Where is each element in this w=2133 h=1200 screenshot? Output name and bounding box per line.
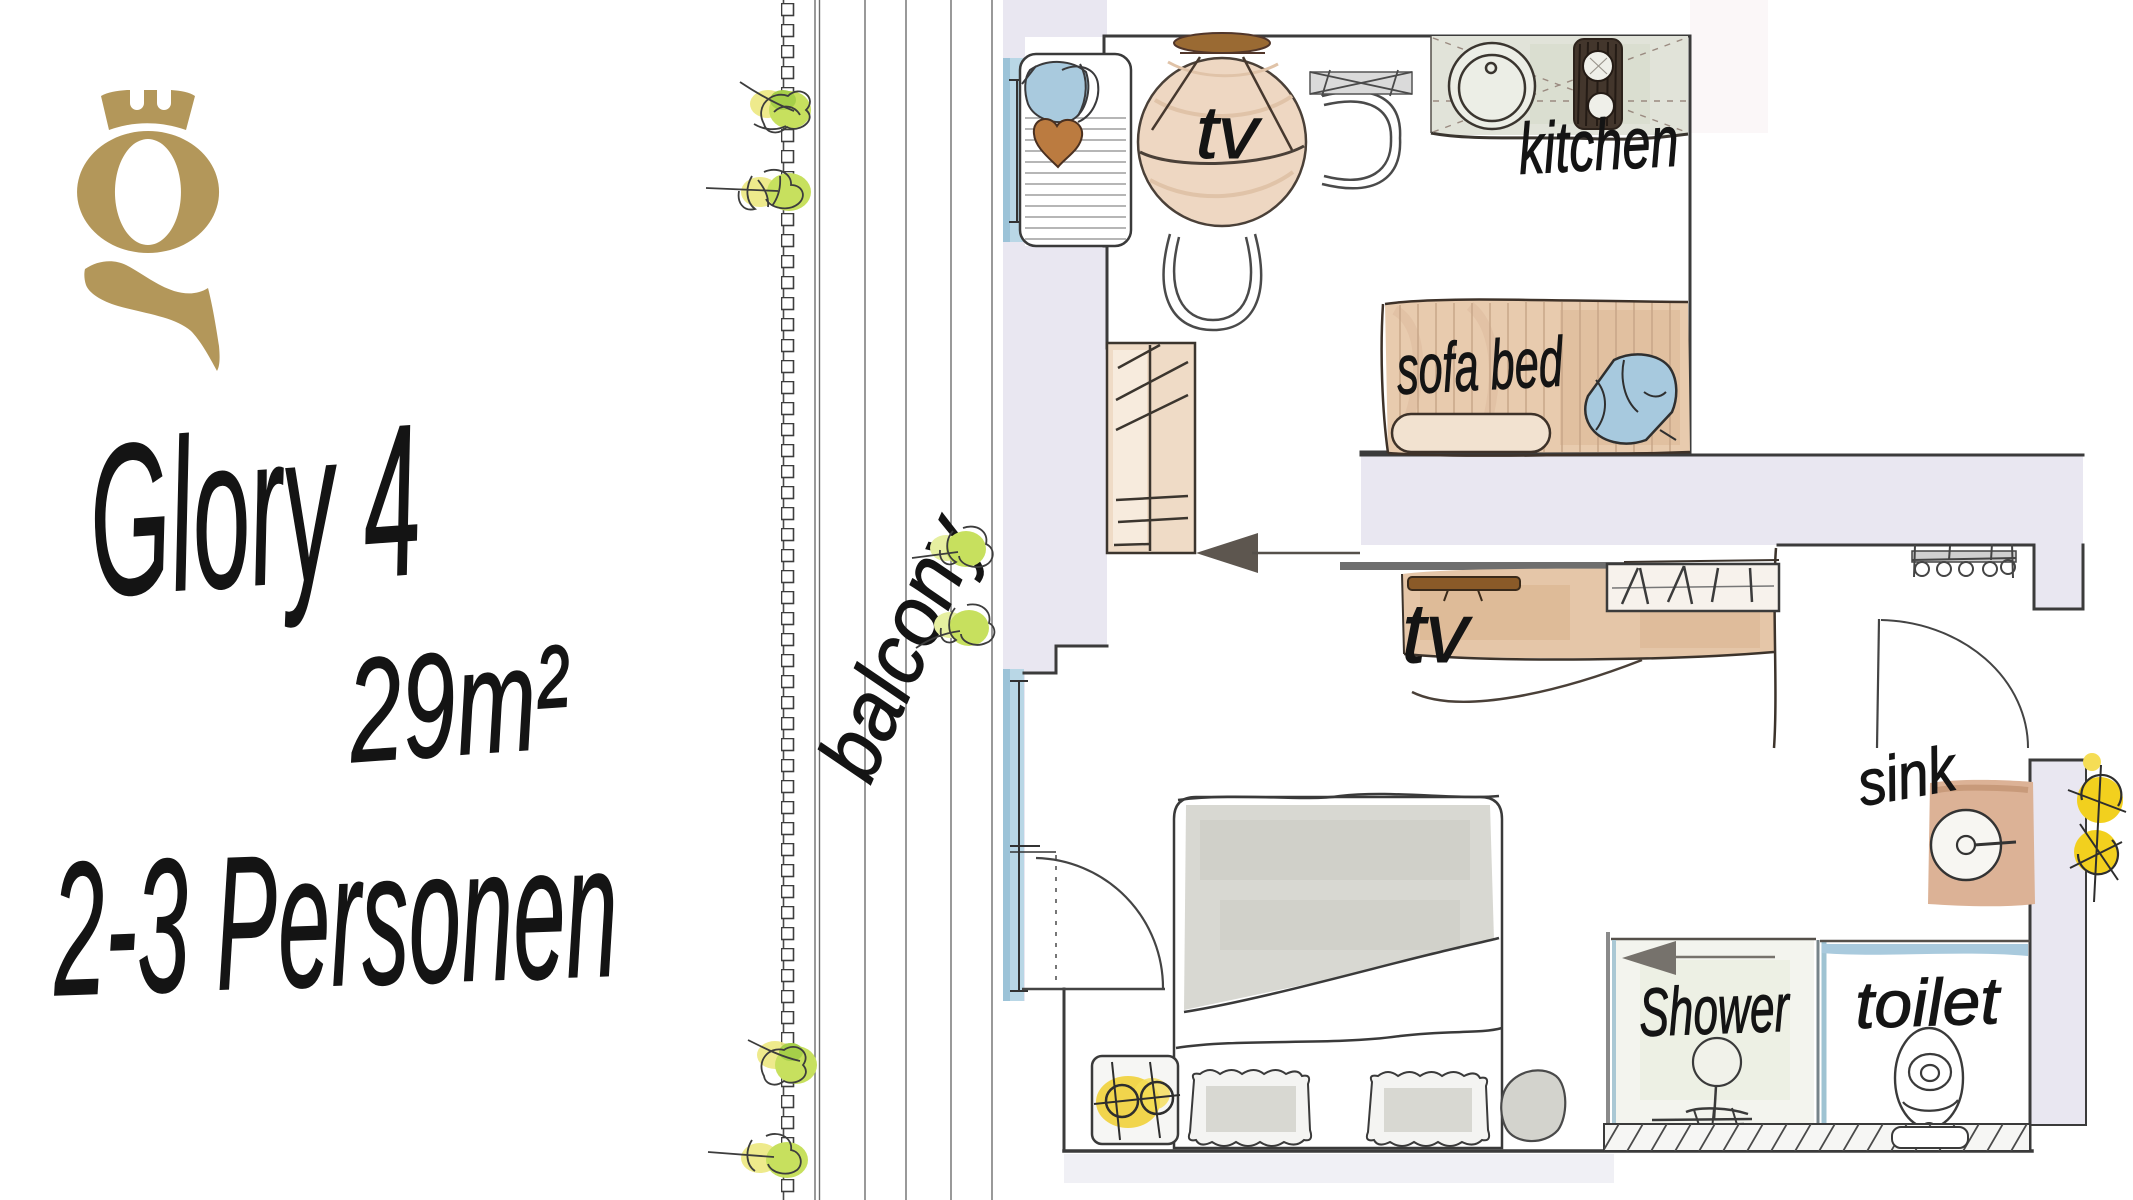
svg-text:tv: tv bbox=[1402, 586, 1473, 680]
svg-text:sofa bed: sofa bed bbox=[1395, 322, 1566, 409]
svg-text:toilet: toilet bbox=[1854, 963, 2003, 1042]
svg-text:Glory 4: Glory 4 bbox=[81, 378, 427, 641]
svg-text:tv: tv bbox=[1196, 91, 1262, 174]
svg-text:2-3 Personen: 2-3 Personen bbox=[48, 804, 621, 1035]
svg-text:29m²: 29m² bbox=[342, 613, 577, 793]
svg-text:kitchen: kitchen bbox=[1516, 102, 1680, 190]
svg-text:Shower: Shower bbox=[1638, 970, 1792, 1051]
